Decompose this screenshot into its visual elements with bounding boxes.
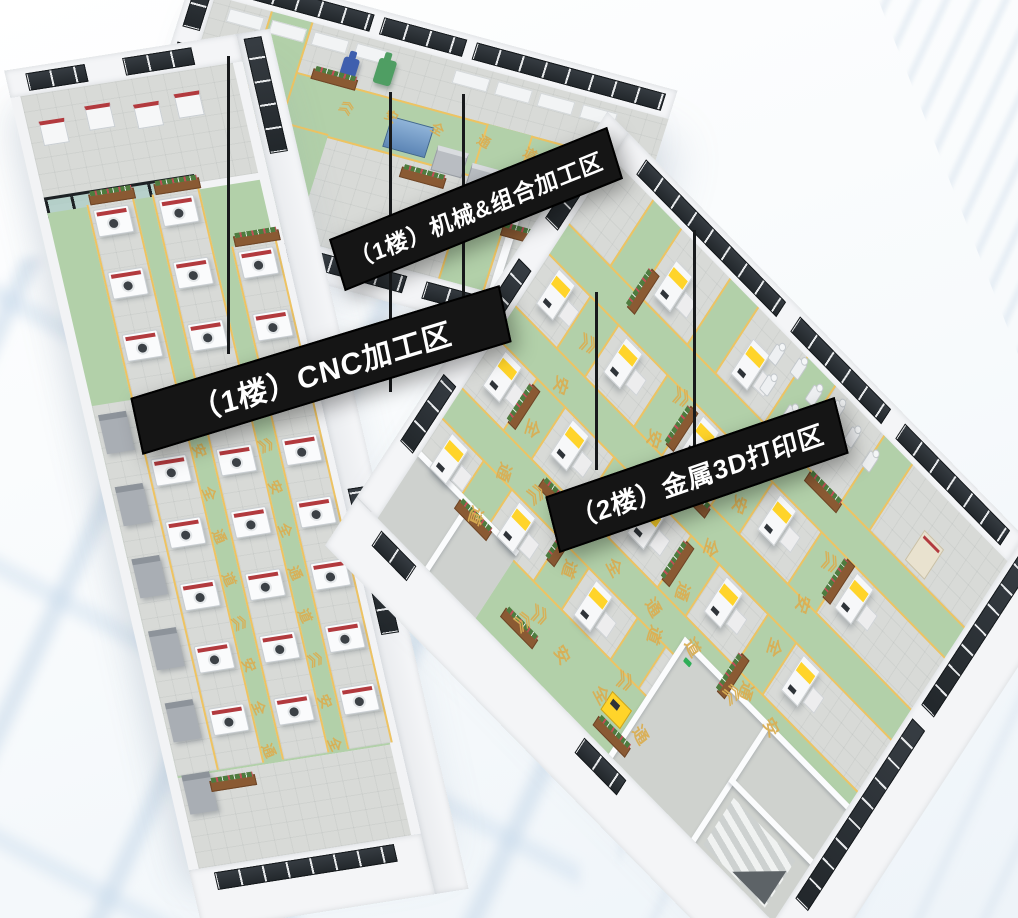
aisle-chevron-marking: 《《 [579, 330, 605, 358]
aisle-text-marking: 道 [559, 557, 578, 581]
robot-figure [789, 357, 807, 381]
aisle-text-marking: 全 [325, 735, 344, 753]
aisle-text-marking: 安 [793, 592, 812, 616]
aisle-text-marking: 道 [644, 623, 663, 647]
aisle-text-marking: 安 [644, 426, 663, 450]
planter-box [233, 229, 281, 247]
aisle-text-marking: 道 [682, 635, 703, 661]
planter-box [209, 774, 257, 792]
planter-box [88, 188, 136, 206]
workbench [268, 20, 307, 43]
cnc-machine [121, 329, 163, 362]
cnc-machine [107, 267, 149, 300]
aisle-text-marking: 安 [729, 492, 748, 516]
aisle-text-marking: 道 [220, 570, 239, 588]
cnc-machine [338, 683, 380, 716]
aisle-chevron-marking: 《《 [230, 611, 255, 631]
aisle-text-marking: 通 [475, 133, 493, 151]
cnc-machine [230, 506, 272, 539]
aisle-text-marking: 安 [240, 656, 259, 674]
aisle-text-marking: 安 [551, 373, 570, 397]
aisle-text-marking: 安 [760, 715, 781, 741]
cnc-machine [193, 641, 235, 674]
robot-figure [861, 450, 879, 474]
cnc-machine [158, 194, 200, 227]
aisle-chevron-marking: 《《 [306, 648, 331, 668]
workbench [311, 31, 350, 54]
aisle-chevron-marking: 《《 [337, 93, 359, 116]
robot-figure [767, 343, 785, 367]
aisle-text-marking: 全 [276, 521, 295, 539]
cnc-machine [281, 433, 323, 466]
cnc-machine [179, 579, 221, 612]
cnc-machine [93, 205, 135, 238]
aisle-chevron-marking: 《《 [256, 434, 281, 454]
cnc-machine [172, 257, 214, 290]
aisle-text-marking: 全 [764, 635, 783, 659]
aisle-text-marking: 通 [286, 564, 305, 582]
factory-isometric-scene: 《《安全《《安全通道 《《安全通道《《安全通《《安全通道《《安全 [0, 0, 1018, 918]
cnc-machine [252, 309, 294, 342]
workbench [494, 81, 533, 104]
aisle-text-marking: 通 [643, 595, 664, 621]
aisle-text-marking: 安 [316, 693, 335, 711]
aisle-text-marking: 通 [494, 460, 513, 484]
cnc-machine [150, 454, 192, 487]
cabinet-machine [84, 102, 115, 130]
cnc-machine [273, 693, 315, 726]
cnc-machine [259, 631, 301, 664]
aisle-chevron-marking: 《《 [615, 668, 641, 696]
cnc-machine [215, 444, 257, 477]
workbench [537, 93, 576, 116]
workbench [452, 70, 491, 93]
aisle-text-marking: 安 [266, 478, 285, 496]
cnc-support-machine [905, 530, 944, 580]
banner-pole [693, 230, 696, 462]
aisle-text-marking: 安 [551, 642, 572, 668]
aisle-text-marking: 全 [200, 485, 219, 503]
workbench [226, 8, 265, 31]
planter-box [153, 177, 201, 195]
aisle-text-marking: 安 [190, 442, 209, 460]
cnc-machine [165, 516, 207, 549]
aisle-text-marking: 全 [701, 536, 720, 560]
cnc-machine [324, 620, 366, 653]
aisle-chevron-marking: 《《 [820, 549, 846, 577]
cnc-machine [208, 703, 250, 736]
aisle-text-marking: 全 [249, 699, 268, 717]
cnc-machine [238, 246, 280, 279]
cnc-machine [244, 568, 286, 601]
cabinet-machine [38, 118, 69, 146]
banner-pole [227, 56, 230, 354]
gray-machine [98, 411, 135, 454]
planter-box [804, 471, 842, 513]
aisle-text-marking: 通 [630, 722, 651, 748]
gray-machine [131, 555, 168, 598]
cnc-machine [295, 496, 337, 529]
aisle-text-marking: 通 [210, 527, 229, 545]
aisle-text-marking: 通 [673, 579, 692, 603]
aisle-text-marking: 全 [603, 555, 624, 581]
cabinet-machine [173, 90, 204, 118]
cabinet-machine [133, 101, 164, 129]
aisle-text-marking: 全 [522, 416, 541, 440]
gray-machine [115, 483, 152, 526]
gray-machine [165, 699, 202, 742]
aisle-text-marking: 道 [296, 607, 315, 625]
cnc-machine [187, 319, 229, 352]
banner-pole [595, 292, 598, 470]
gray-machine [148, 627, 185, 670]
aisle-text-marking: 通 [259, 742, 278, 760]
